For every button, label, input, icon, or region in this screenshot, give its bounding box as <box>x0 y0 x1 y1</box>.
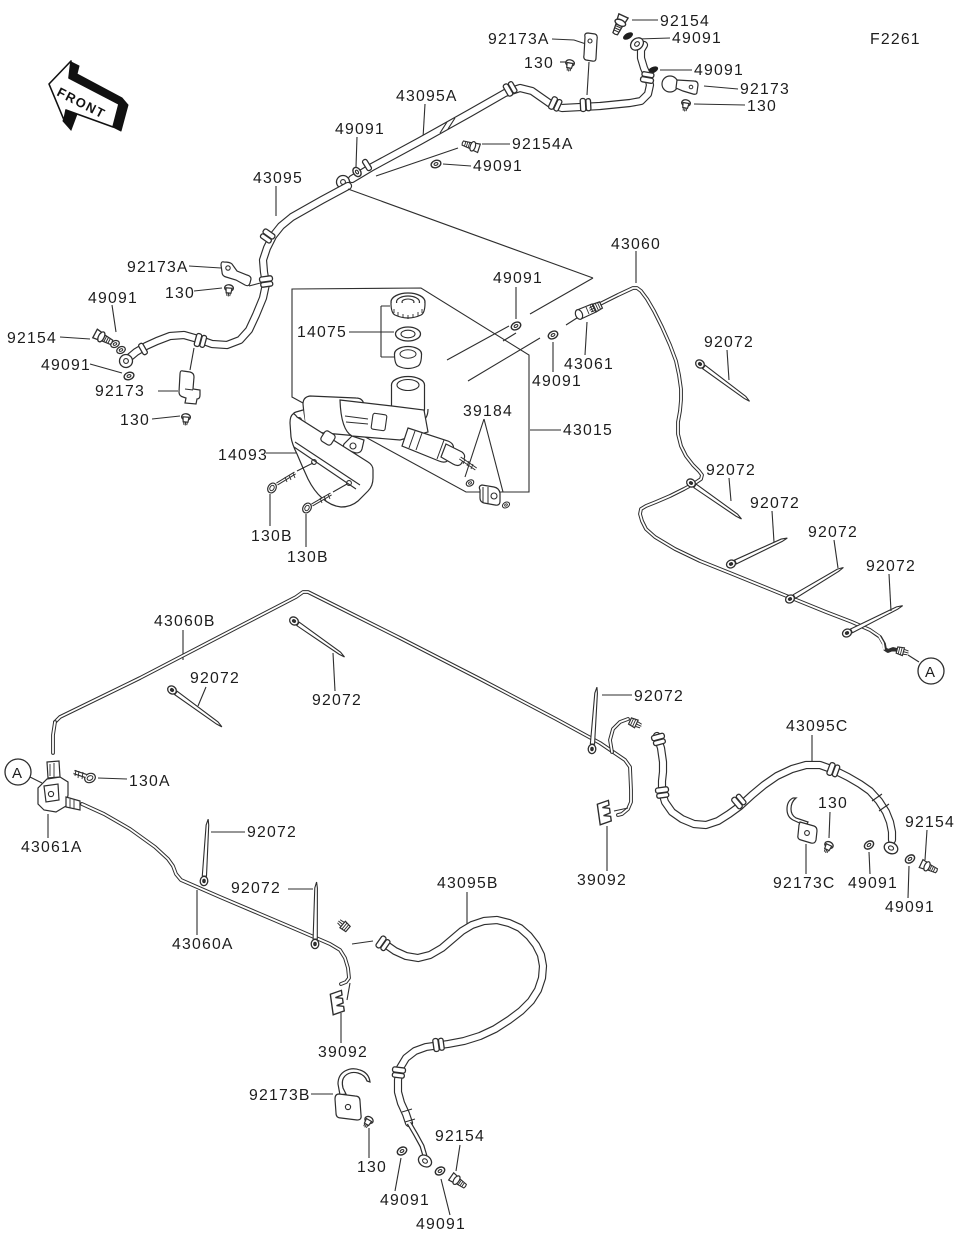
svg-text:130B: 130B <box>287 549 329 566</box>
svg-text:92154: 92154 <box>905 814 955 831</box>
svg-text:43060: 43060 <box>611 236 661 253</box>
svg-text:92072: 92072 <box>750 495 800 512</box>
svg-text:92072: 92072 <box>866 558 916 575</box>
svg-text:43095A: 43095A <box>396 88 458 105</box>
svg-text:92154: 92154 <box>660 13 710 30</box>
svg-text:92173: 92173 <box>740 81 790 98</box>
svg-text:130A: 130A <box>129 773 171 790</box>
svg-text:43095: 43095 <box>253 170 303 187</box>
svg-text:39092: 39092 <box>577 872 627 889</box>
svg-text:A: A <box>12 765 22 782</box>
svg-text:49091: 49091 <box>672 30 722 47</box>
svg-text:49091: 49091 <box>493 270 543 287</box>
svg-text:92072: 92072 <box>247 824 297 841</box>
svg-text:49091: 49091 <box>532 373 582 390</box>
svg-text:92072: 92072 <box>312 692 362 709</box>
svg-text:43061A: 43061A <box>21 839 83 856</box>
svg-text:49091: 49091 <box>473 158 523 175</box>
svg-text:A: A <box>925 664 935 681</box>
svg-text:92072: 92072 <box>634 688 684 705</box>
svg-text:130: 130 <box>165 285 195 302</box>
svg-text:39184: 39184 <box>463 403 513 420</box>
svg-text:92072: 92072 <box>231 880 281 897</box>
svg-text:92173: 92173 <box>95 383 145 400</box>
svg-text:92173A: 92173A <box>127 259 189 276</box>
svg-text:92173C: 92173C <box>773 875 836 892</box>
svg-text:130: 130 <box>747 98 777 115</box>
svg-text:43095C: 43095C <box>786 718 849 735</box>
svg-text:130B: 130B <box>251 528 293 545</box>
svg-text:92154: 92154 <box>435 1128 485 1145</box>
svg-text:92072: 92072 <box>190 670 240 687</box>
svg-text:49091: 49091 <box>694 62 744 79</box>
svg-text:49091: 49091 <box>416 1216 466 1233</box>
svg-text:49091: 49091 <box>88 290 138 307</box>
svg-text:14093: 14093 <box>218 447 268 464</box>
svg-text:92072: 92072 <box>808 524 858 541</box>
svg-text:130: 130 <box>818 795 848 812</box>
svg-text:43015: 43015 <box>563 422 613 439</box>
svg-text:F2261: F2261 <box>870 31 921 48</box>
svg-text:92154: 92154 <box>7 330 57 347</box>
svg-text:43060B: 43060B <box>154 613 216 630</box>
svg-text:130: 130 <box>524 55 554 72</box>
svg-text:43060A: 43060A <box>172 936 234 953</box>
svg-text:14075: 14075 <box>297 324 347 341</box>
svg-text:92072: 92072 <box>706 462 756 479</box>
svg-text:49091: 49091 <box>848 875 898 892</box>
svg-text:49091: 49091 <box>335 121 385 138</box>
svg-text:130: 130 <box>357 1159 387 1176</box>
svg-text:92154A: 92154A <box>512 136 574 153</box>
svg-text:43095B: 43095B <box>437 875 499 892</box>
svg-text:49091: 49091 <box>380 1192 430 1209</box>
svg-text:49091: 49091 <box>41 357 91 374</box>
svg-text:92173A: 92173A <box>488 31 550 48</box>
svg-text:43061: 43061 <box>564 356 614 373</box>
svg-text:92173B: 92173B <box>249 1087 311 1104</box>
svg-text:92072: 92072 <box>704 334 754 351</box>
svg-text:49091: 49091 <box>885 899 935 916</box>
svg-text:130: 130 <box>120 412 150 429</box>
svg-text:39092: 39092 <box>318 1044 368 1061</box>
